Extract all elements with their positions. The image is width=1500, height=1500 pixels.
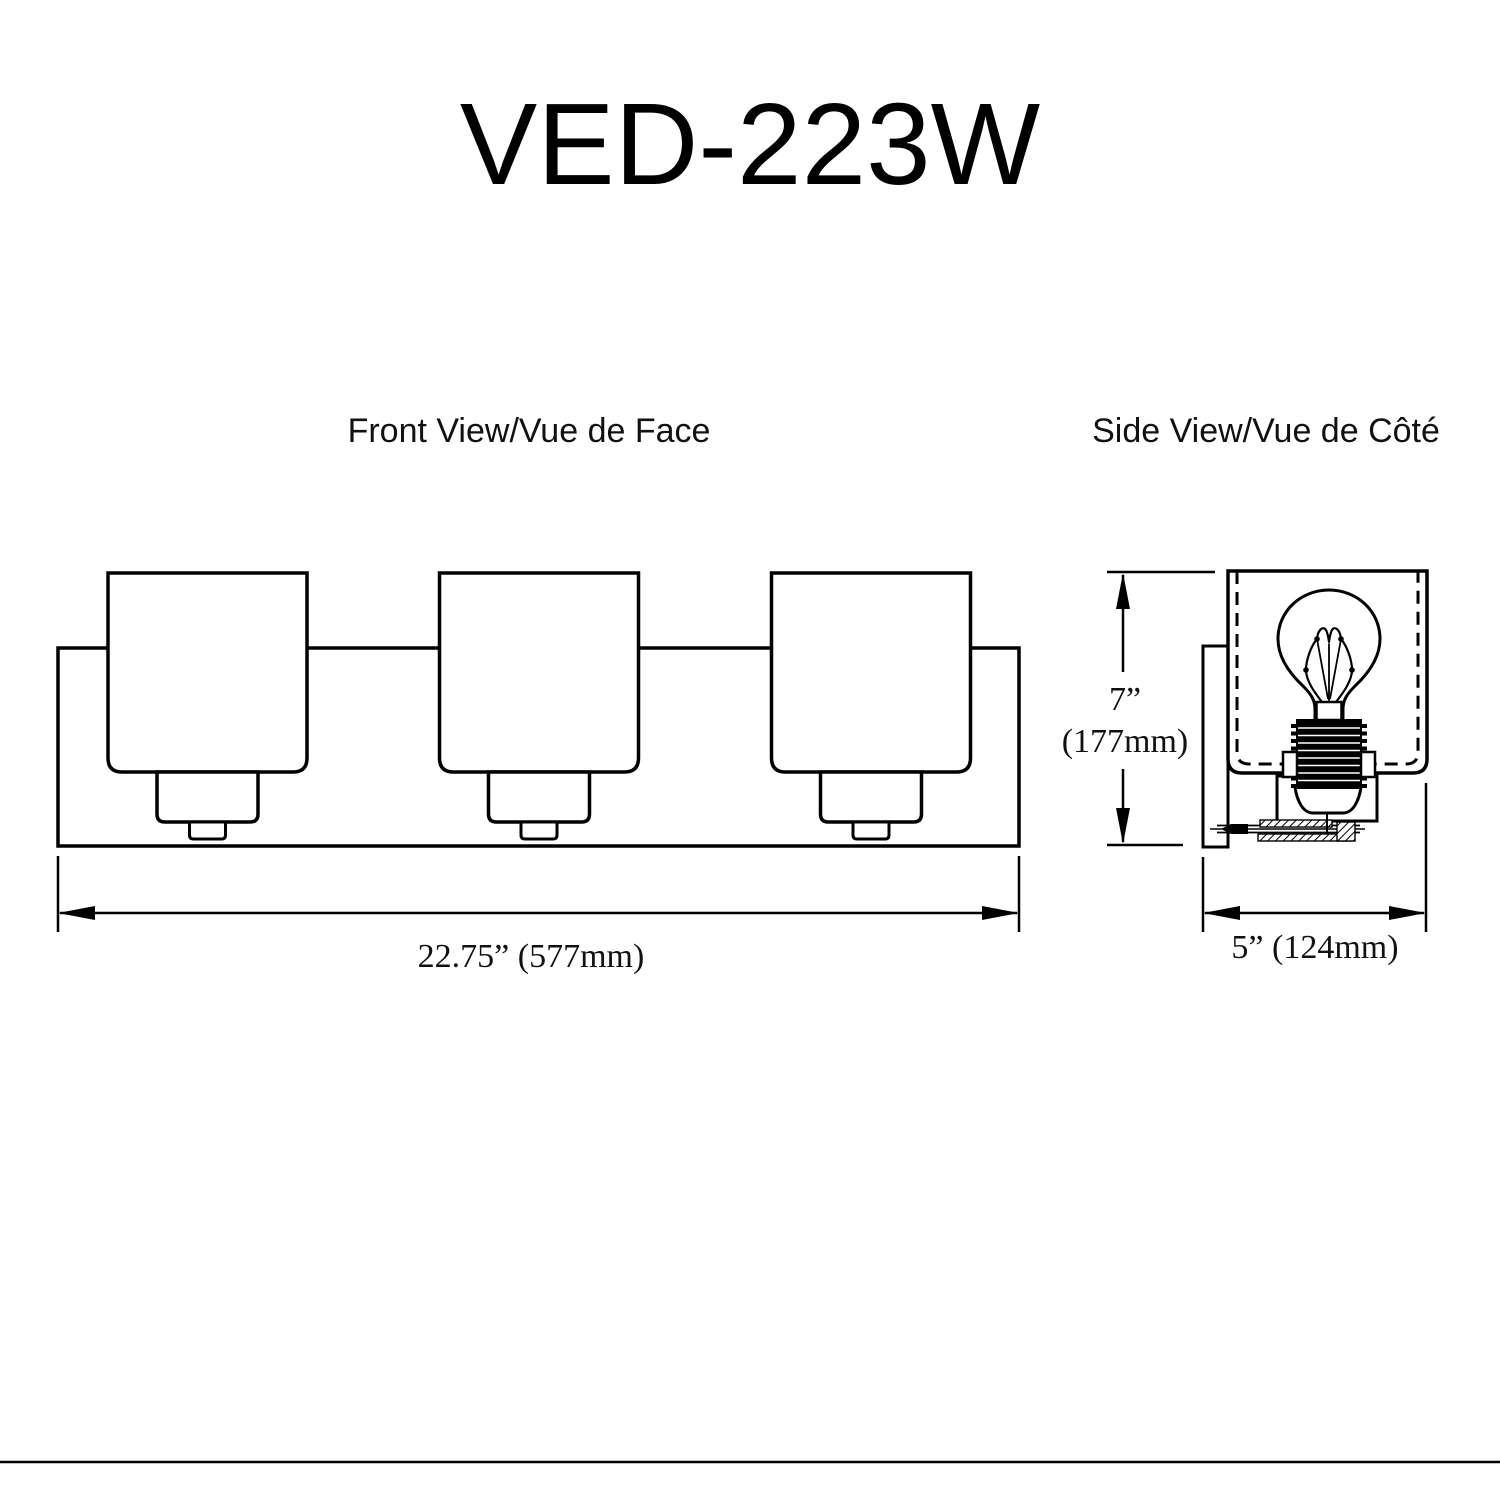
side-height-inches-label: 7” — [1109, 681, 1141, 718]
arrowhead-right — [982, 906, 1019, 920]
arrowhead-left — [58, 906, 95, 920]
side-height-mm-label: (177mm) — [1062, 723, 1189, 760]
arrowhead-up — [1116, 573, 1130, 609]
side-depth-dimension-label: 5” (124mm) — [1231, 929, 1398, 966]
socket-flange-right — [1361, 752, 1375, 777]
arrowhead-left — [1203, 906, 1240, 920]
front-view-drawing: 22.75” (577mm) — [58, 573, 1019, 975]
bulb-neck-sleeve — [1317, 702, 1342, 720]
socket-flange-left — [1283, 752, 1297, 777]
hatched-block-right — [1337, 822, 1355, 841]
side-view-drawing: 7” (177mm) 5” (124mm) — [1062, 571, 1427, 966]
hatched-bar-top — [1260, 820, 1332, 827]
technical-drawing: 22.75” (577mm) — [0, 0, 1500, 1500]
arrowhead-down — [1116, 808, 1130, 844]
front-width-dimension-label: 22.75” (577mm) — [418, 938, 645, 975]
wall-plate — [1203, 646, 1228, 847]
arrowhead-right — [1389, 906, 1426, 920]
threaded-socket — [1291, 719, 1367, 789]
socket-bowl — [1295, 787, 1361, 813]
front-width-dimension — [58, 856, 1019, 932]
spec-sheet-page: VED-223W Front View/Vue de Face Side Vie… — [0, 0, 1500, 1500]
